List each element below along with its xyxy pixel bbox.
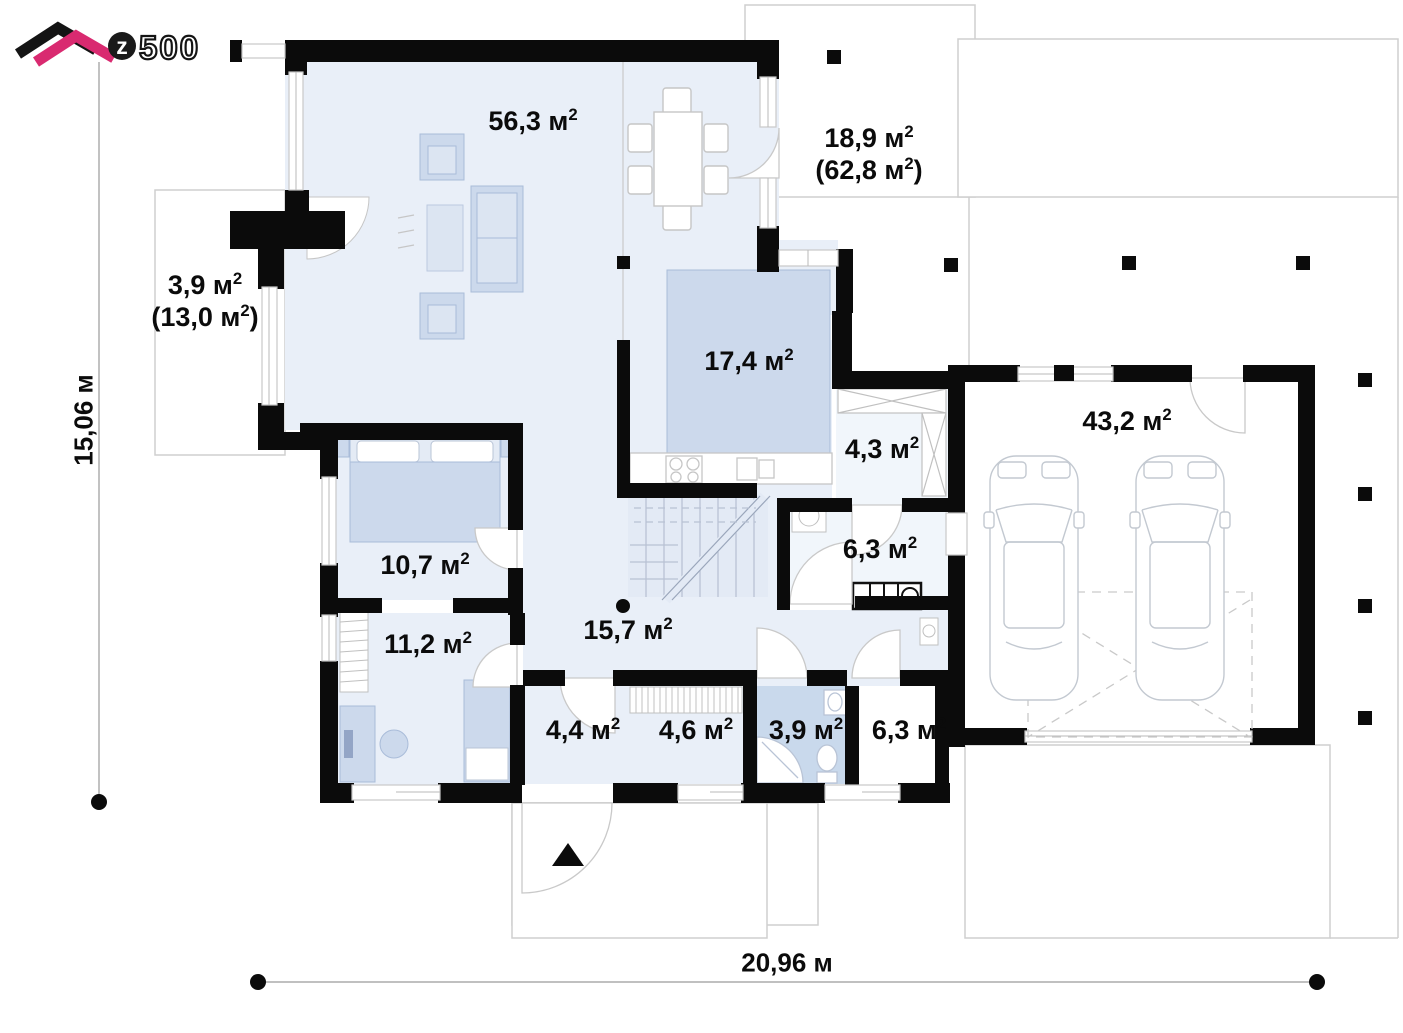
toilet [817,745,837,771]
dimension-height-label: 15,06 м [69,374,100,466]
room-label-bedroom: 10,7 м2 [380,550,469,582]
room-label-terrace-top: 18,9 м2 (62,8 м2) [815,123,922,187]
room-label-wardrobe: 4,6 м2 [659,715,733,747]
car-icon [1130,456,1230,700]
dimension-width-label: 20,96 м [741,948,833,979]
room-label-tech-room: 6,3 м2 [872,715,946,747]
staircase [628,496,770,600]
stair-post-dot [616,599,630,613]
chair [380,730,408,758]
room-label-closet: 4,3 м2 [845,434,919,466]
logo-numbers: 500 [139,29,200,66]
room-label-bathroom-lower: 3,9 м2 [769,715,843,747]
logo-letter-z: z [116,33,128,59]
floor-plan-drawing [0,0,1403,1033]
room-label-vestibule: 4,4 м2 [546,715,620,747]
boiler [920,618,938,645]
room-label-garage: 43,2 м2 [1082,406,1171,438]
room-label-terrace-left: 3,9 м2 (13,0 м2) [151,270,258,334]
room-label-living-room: 56,3 м2 [488,106,577,138]
floor-plan-page: z 500 56,3 м2 18,9 м2 (62,8 м2) 3,9 м2 (… [0,0,1403,1033]
garage-side-door [1190,378,1245,433]
kitchen-counter [630,453,832,484]
bed [336,436,514,542]
room-label-bathroom-upper: 6,3 м2 [843,534,917,566]
room-label-hall: 15,7 м2 [583,615,672,647]
paving-bottom-right-outline [965,745,1330,938]
paving-top-right-outline [958,39,1398,197]
car-icon [984,456,1084,700]
room-label-cabinet: 11,2 м2 [384,629,472,661]
z500-logo: z 500 [12,8,242,70]
wardrobe-rail [630,687,742,713]
room-label-kitchen: 17,4 м2 [704,346,793,378]
